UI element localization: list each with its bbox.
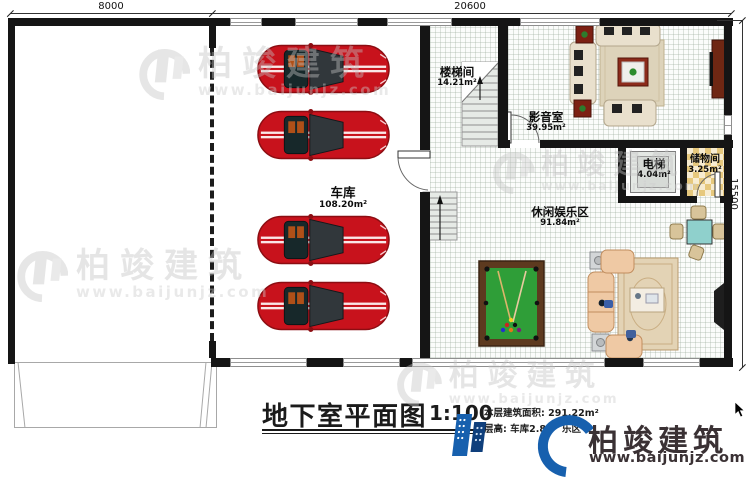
floor-plan: 8000 20600 15500 xyxy=(0,0,750,483)
brand-logo-icon xyxy=(452,414,590,472)
mouse-cursor xyxy=(735,402,744,417)
brand-url: www.baijunjz.com xyxy=(589,450,745,466)
brand-logo-layer xyxy=(0,0,750,483)
